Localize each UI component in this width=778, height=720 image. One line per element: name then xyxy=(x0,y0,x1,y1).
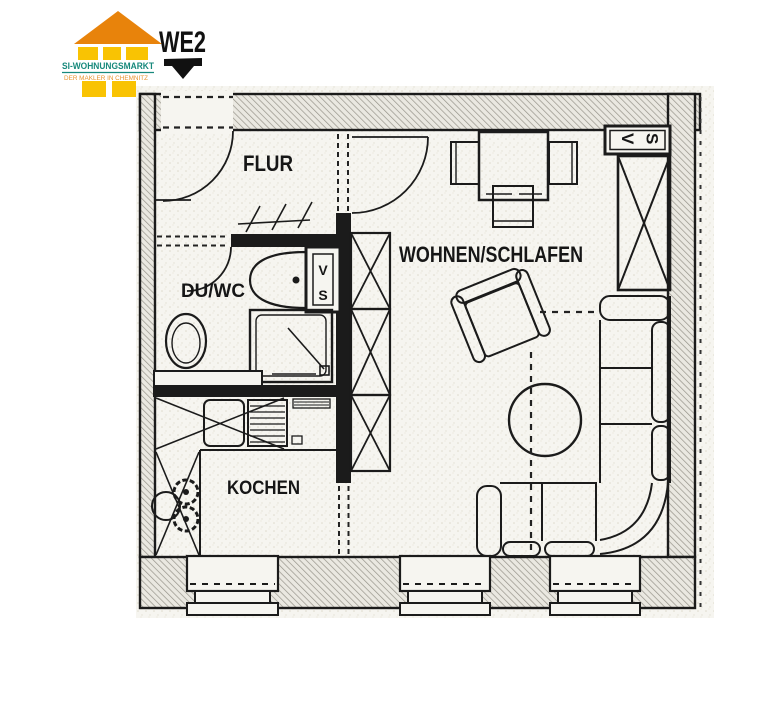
window xyxy=(400,556,490,615)
floorplan-drawing: SI-WOHNUNGSMARKT DER MAKLER IN CHEMNITZ … xyxy=(0,0,778,720)
unit-annotation: WE2 xyxy=(159,26,206,79)
washbasin-tap xyxy=(293,277,300,284)
logo-tagline-text: DER MAKLER IN CHEMNITZ xyxy=(64,75,148,82)
logo-brand-text: SI-WOHNUNGSMARKT xyxy=(62,61,154,72)
unit-label: WE2 xyxy=(159,26,206,59)
logo-pillar-left xyxy=(82,81,106,97)
bath-shaft-label-v: V xyxy=(318,262,328,278)
plan-paper xyxy=(136,86,714,618)
logo-facade-gap xyxy=(121,47,126,60)
hall-shaft: VS xyxy=(605,126,670,157)
window xyxy=(550,556,640,615)
room-label-wohnen-schlafen: WOHNEN/SCHLAFEN xyxy=(399,242,583,267)
room-label-kochen: KOCHEN xyxy=(227,478,300,499)
agency-logo: SI-WOHNUNGSMARKT DER MAKLER IN CHEMNITZ xyxy=(62,11,162,97)
wall-duwc-top xyxy=(231,234,336,247)
down-arrow-icon xyxy=(164,58,202,79)
room-label-flur: FLUR xyxy=(243,151,293,176)
logo-facade-gap xyxy=(98,47,103,60)
window xyxy=(187,556,278,615)
logo-facade-block xyxy=(78,47,148,60)
bath-shaft-label-s: S xyxy=(318,287,327,303)
room-label-duwc: DU/WC xyxy=(181,281,245,302)
floorplan: V S xyxy=(136,86,714,618)
logo-roof-icon xyxy=(74,11,162,44)
logo-pillar-right xyxy=(112,81,136,97)
toilet-cistern xyxy=(154,371,262,386)
bath-shaft: V S xyxy=(306,247,340,312)
wall-right xyxy=(668,94,695,557)
windows xyxy=(187,556,640,615)
wall-left xyxy=(140,94,155,557)
scanned-floorplan-page: SI-WOHNUNGSMARKT DER MAKLER IN CHEMNITZ … xyxy=(0,0,778,720)
